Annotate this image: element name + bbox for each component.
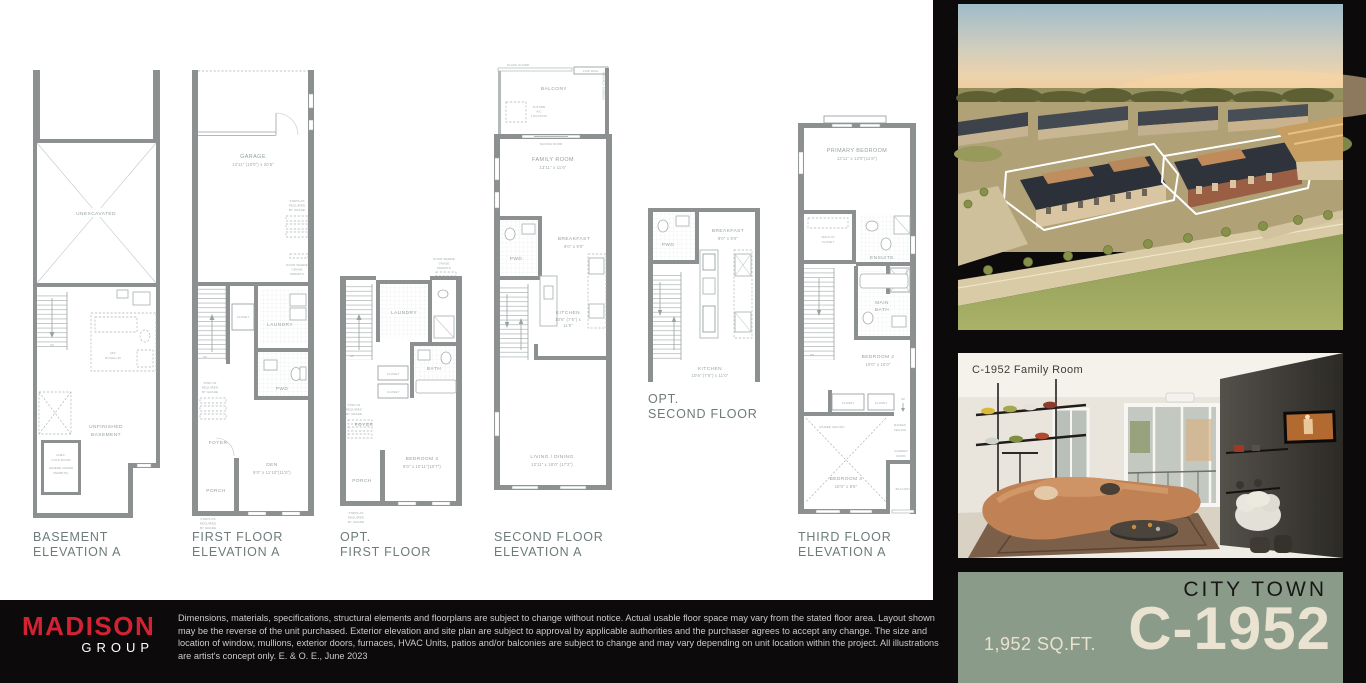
- caption-line: ELEVATION A: [33, 545, 121, 560]
- room-dims-living-dining: 13'11" x 18'0" (17'2"): [531, 462, 573, 467]
- caption-line: ELEVATION A: [192, 545, 283, 560]
- caption-line: OPT.: [340, 530, 431, 545]
- caption-line: SECOND FLOOR: [494, 530, 604, 545]
- room-label-balcony: BALCONY: [541, 86, 567, 92]
- note-future-ac: FUTURE: [533, 105, 546, 109]
- room-label-family-room: FAMILY ROOM: [532, 157, 574, 163]
- family-room-photo-caption: C-1952 Family Room: [972, 364, 1083, 376]
- room-label-pwd: PWD: [662, 242, 675, 248]
- room-label-primary-bedroom: PRIMARY BEDROOM: [827, 148, 888, 154]
- note-door-grade: DOOR WHERE: [433, 257, 455, 261]
- room-label-breakfast: BREAKFAST: [558, 236, 590, 242]
- note-step-grade: REQUIRED: [346, 408, 362, 412]
- pouf: [1274, 535, 1292, 553]
- room-dims-garage: 13'11" (10'0") x 20'5": [232, 162, 274, 167]
- room-dims-den: 9'0" x 11'10"(11'0"): [253, 470, 291, 475]
- madison-group-logo: MADISON GROUP: [22, 613, 154, 655]
- accent-wall: [1220, 353, 1343, 558]
- caption-line: OPT.: [648, 392, 758, 407]
- room-dims-bedroom2: 10'0" x 10'0": [865, 362, 890, 367]
- stair-label-up: UP: [901, 397, 905, 401]
- note-steps-grade: BY GRADE: [289, 208, 305, 212]
- room-dims-breakfast: 9'0" x 9'0": [718, 236, 738, 241]
- note-raised-ceiling: RAISED: [894, 423, 906, 427]
- room-label-ensuite: ENSUITE: [870, 255, 894, 261]
- floorplan-first: GARAGE 13'11" (10'0") x 20'5" STEPS AS R…: [192, 68, 314, 528]
- model-number: C-1952: [1128, 599, 1331, 659]
- note-steps-grade: REQUIRED: [200, 522, 216, 526]
- room-label-closet: CLOSET: [387, 372, 400, 376]
- caption-line: SECOND FLOOR: [648, 407, 758, 422]
- note-step-grade: STEP AS: [347, 403, 360, 407]
- note-step-grade: REQUIRED: [202, 386, 218, 390]
- note-rough-in: 3PC: [110, 351, 116, 355]
- note-door-grade: GRADE: [291, 268, 302, 272]
- floorplan-sheet: UNEXCAVATED UP 3PC ROUGH-IN UNFINISHED B…: [0, 0, 933, 600]
- room-label-cold-room: UNEX.: [56, 453, 66, 457]
- room-label-kitchen: KITCHEN: [556, 310, 580, 316]
- room-dims-bedroom4: 9'0" x 10'11"(10'7"): [403, 464, 441, 469]
- caption-line: BASEMENT: [33, 530, 121, 545]
- note-step-grade: STEP AS: [203, 381, 216, 385]
- room-label-garage: GARAGE: [240, 154, 266, 160]
- note-future-ac: A/C: [536, 110, 541, 114]
- floorplan-second: GLASS GUARD LOW WALL PRIVACY SCREEN BALC…: [494, 62, 612, 494]
- room-label-porch: PORCH: [352, 478, 372, 484]
- note-garden-door: DOOR: [896, 454, 905, 458]
- room-label-laundry: LAUNDRY: [267, 322, 293, 328]
- note-raised-ceiling: CEILING: [894, 428, 907, 432]
- caption-line: FIRST FLOOR: [340, 545, 431, 560]
- floorplan-third: PRIMARY BEDROOM 13'11" x 13'0"(11'8") WA…: [798, 116, 916, 520]
- note-door-grade: DOOR WHERE: [286, 263, 308, 267]
- window-left: [1054, 409, 1088, 481]
- note-glass-guard: GLASS GUARD: [507, 63, 530, 67]
- caption-opt-first-floor: OPT. FIRST FLOOR: [340, 530, 431, 561]
- room-dims-bedroom3: 10'0" x 8'6": [835, 484, 858, 489]
- family-room-photo: C-1952 Family Room: [958, 353, 1343, 558]
- legal-disclaimer: Dimensions, materials, specifications, s…: [178, 612, 942, 663]
- model-badge: CITY TOWN C-1952 1,952 SQ.FT.: [958, 572, 1343, 683]
- room-label-unexcavated: UNEXCAVATED: [76, 211, 116, 217]
- caption-line: ELEVATION A: [798, 545, 892, 560]
- room-label-cold-room: (WHERE GRADE: [49, 466, 74, 470]
- note-garden-door: GARDEN: [894, 449, 907, 453]
- room-label-foyer: FOYER: [209, 440, 228, 446]
- caption-second-floor: SECOND FLOOR ELEVATION A: [494, 530, 604, 561]
- room-label-laundry: LAUNDRY: [391, 310, 417, 316]
- room-dims-breakfast: 9'0" x 9'0": [564, 244, 584, 249]
- note-privacy-screen: PRIVACY SCREEN: [602, 72, 606, 99]
- stair-label-dn: DN: [810, 353, 814, 357]
- logo-subtitle: GROUP: [22, 640, 154, 655]
- note-steps-grade: REQUIRED: [348, 516, 364, 520]
- room-label-cold-room: PERMITS): [53, 471, 68, 475]
- brochure-page: UNEXCAVATED UP 3PC ROUGH-IN UNFINISHED B…: [0, 0, 1366, 683]
- caption-line: FIRST FLOOR: [192, 530, 283, 545]
- room-label-breakfast: BREAKFAST: [712, 228, 744, 234]
- note-door-grade: PERMITS: [290, 272, 304, 276]
- note-door-grade: PERMITS: [437, 266, 451, 270]
- room-label-pwd: PWD: [276, 386, 289, 392]
- room-label-closet: CLOSET: [237, 315, 250, 319]
- room-label-unfinished-basement: BASEMENT: [91, 432, 121, 438]
- room-dims-kitchen: 10'6" (7'6") x 11'0": [692, 373, 729, 378]
- note-steps-grade: STEPS AS: [348, 511, 363, 515]
- room-label-pwd: PWD: [510, 256, 523, 262]
- note-steps-grade: REQUIRED: [289, 204, 305, 208]
- note-door-grade: GRADE: [438, 262, 449, 266]
- note-step-grade: BY GRADE: [346, 412, 362, 416]
- room-label-bath: BATH: [427, 366, 441, 372]
- room-dims-primary-bedroom: 13'11" x 13'0"(11'8"): [837, 156, 878, 161]
- caption-first-floor: FIRST FLOOR ELEVATION A: [192, 530, 283, 561]
- room-dims-family-room: 13'11" x 11'6": [540, 165, 567, 170]
- caption-third-floor: THIRD FLOOR ELEVATION A: [798, 530, 892, 561]
- room-label-closet: CLOSET: [875, 401, 888, 405]
- room-label-walk-in-closet: WALK-IN: [822, 235, 835, 239]
- note-sliding-door: SLIDING DOOR: [540, 142, 563, 146]
- room-label-closet: CLOSET: [387, 390, 400, 394]
- stair-label-up: UP: [203, 355, 207, 359]
- caption-line: THIRD FLOOR: [798, 530, 892, 545]
- room-label-porch: PORCH: [206, 488, 226, 494]
- room-dims-kitchen: 10'6" (7'6") x: [555, 317, 581, 322]
- model-area: 1,952 SQ.FT.: [984, 634, 1096, 655]
- room-label-living-dining: LIVING / DINING: [530, 454, 573, 460]
- stair-label-up: UP: [350, 354, 354, 358]
- note-rough-in: ROUGH-IN: [105, 356, 121, 360]
- room-label-bedroom2: BEDROOM 2: [862, 354, 895, 360]
- room-label-cold-room: COLD ROOM: [51, 458, 71, 462]
- note-future-ac: LOCATION: [531, 114, 547, 118]
- note-low-wall: LOW WALL: [583, 69, 600, 73]
- room-label-bedroom4: BEDROOM 4: [406, 456, 439, 462]
- room-label-kitchen: KITCHEN: [698, 366, 722, 372]
- room-label-bedroom3: BEDROOM 3: [830, 476, 863, 482]
- room-dims-kitchen: 11'0": [563, 323, 573, 328]
- coffee-table: [1110, 520, 1178, 541]
- room-label-balcony: BALCONY: [896, 487, 911, 491]
- note-raised-ceiling: RAISED CEILING: [819, 425, 845, 429]
- caption-basement: BASEMENT ELEVATION A: [33, 530, 121, 561]
- aerial-rendering-photo: [958, 4, 1343, 330]
- note-steps-grade: BY GRADE: [348, 520, 364, 524]
- caption-line: ELEVATION A: [494, 545, 604, 560]
- pouf: [1250, 537, 1270, 553]
- stair-label-up: UP: [50, 343, 54, 347]
- note-steps-grade: STEPS AS: [289, 199, 304, 203]
- note-steps-grade: STEPS AS: [200, 517, 215, 521]
- floorplan-basement: UNEXCAVATED UP 3PC ROUGH-IN UNFINISHED B…: [33, 70, 160, 522]
- room-label-walk-in-closet: CLOSET: [822, 240, 835, 244]
- logo-wordmark: MADISON: [22, 613, 154, 639]
- room-label-main-bath: BATH: [875, 307, 889, 313]
- room-label-main-bath: MAIN: [875, 300, 889, 306]
- ac-unit: [1166, 393, 1194, 402]
- puffy-armchair: [1235, 491, 1281, 531]
- room-label-den: DEN: [266, 462, 278, 468]
- note-step-grade: BY GRADE: [202, 390, 218, 394]
- tv: [1283, 410, 1336, 444]
- caption-opt-second-floor: OPT. SECOND FLOOR: [648, 392, 758, 423]
- floorplan-opt-first: DOOR WHERE GRADE PERMITS UP LAUNDRY: [340, 254, 462, 526]
- room-label-closet: CLOSET: [842, 401, 855, 405]
- floorplan-opt-second: PWD BREAKFAST 9'0" x 9'0" KITCHEN 10'6" …: [648, 206, 760, 386]
- room-label-unfinished-basement: UNFINISHED: [89, 424, 123, 430]
